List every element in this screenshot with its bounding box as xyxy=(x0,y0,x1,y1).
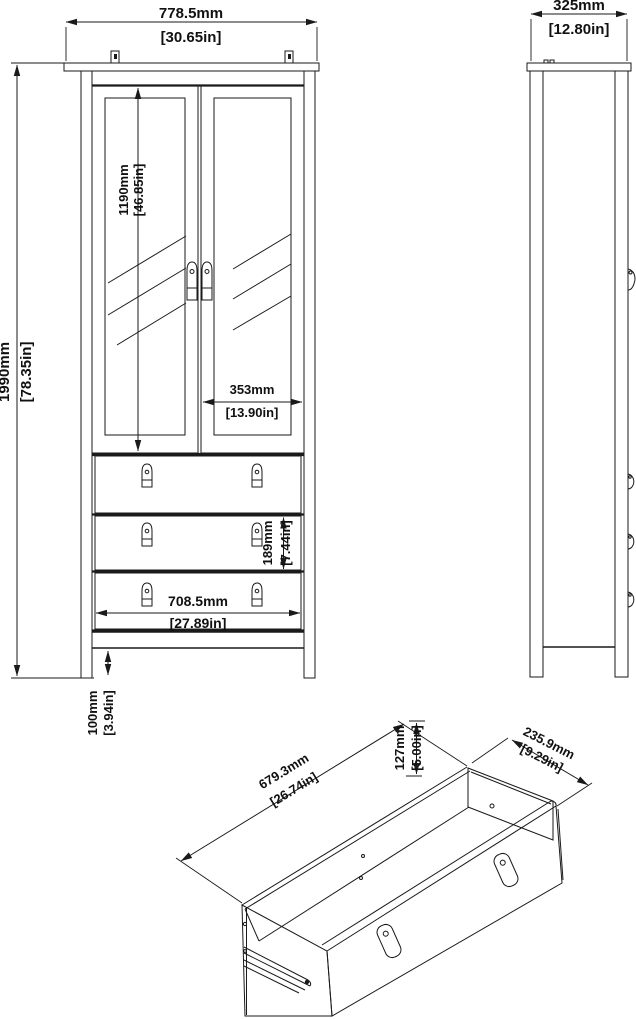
handle-hole xyxy=(145,589,149,593)
handle-outline xyxy=(252,464,262,487)
drawer-box xyxy=(242,767,563,1016)
door-handle-left xyxy=(187,262,197,300)
drawer-3d-view: 679.3mm [26.74in] 127mm [5.00in] 235.9mm… xyxy=(176,721,592,1016)
leg-height-mm-label: 100mm xyxy=(85,691,100,736)
back-wall-top-edges xyxy=(242,767,470,909)
drawer-front-width-in-label: [27.89in] xyxy=(170,615,227,631)
technical-drawing-page: 778.5mm [30.65in] 1990mm [78.35in] xyxy=(0,0,636,1020)
fitting-slot xyxy=(114,54,117,59)
dim-drawer-depth: 235.9mm [9.29in] xyxy=(472,724,592,806)
fitting-slot xyxy=(288,54,291,59)
back-stile xyxy=(530,71,543,677)
front-view: 778.5mm [30.65in] 1990mm [78.35in] xyxy=(0,5,319,736)
rail-screw xyxy=(244,950,247,953)
drawer-height-in-label: [5.00in] xyxy=(409,725,424,771)
front-width-mm-label: 778.5mm xyxy=(159,5,223,22)
left-end-panel xyxy=(242,905,332,1016)
panel-hole xyxy=(490,804,494,808)
handle-strap xyxy=(492,851,520,889)
dim-front-height: 1990mm [78.35in] xyxy=(0,63,94,678)
door-right xyxy=(201,85,304,453)
dim-door-width: 353mm [13.90in] xyxy=(203,382,302,420)
handle-hole xyxy=(629,594,631,596)
dim-drawer-front-height: 189mm [7.44in] xyxy=(260,516,296,571)
handle-hole xyxy=(629,536,631,538)
bottom-rail xyxy=(92,632,304,648)
dim-leg-height: 100mm [3.94in] xyxy=(85,651,116,736)
handle-outline xyxy=(142,583,152,606)
dim-drawer-front-width: 708.5mm [27.89in] xyxy=(96,593,300,631)
drawer3-handle-left xyxy=(142,583,152,606)
handle-outline xyxy=(142,523,152,546)
drawer-front-height-mm-label: 189mm xyxy=(260,521,275,566)
door-handle-side-profile xyxy=(628,269,635,290)
left-end-inner-edge xyxy=(245,909,259,941)
door-left xyxy=(92,85,198,453)
wall-fitting-left xyxy=(111,51,119,63)
door-width-mm-label: 353mm xyxy=(230,382,275,397)
front-height-mm-label: 1990mm xyxy=(0,342,13,402)
glass-reflection-lines-left xyxy=(108,236,186,345)
rail-screw xyxy=(243,922,246,925)
right-stile xyxy=(304,71,315,678)
side-view: 325mm [12.80in] xyxy=(527,0,635,677)
handle-outline xyxy=(187,262,197,300)
handle-hole xyxy=(499,859,506,866)
top-cap-side xyxy=(527,63,631,71)
leg-height-in-label: [3.94in] xyxy=(101,690,116,736)
handle-hole xyxy=(629,476,631,478)
drawer2-handle-left xyxy=(142,523,152,546)
panel-inner-top-edge xyxy=(471,772,551,804)
handle-strap xyxy=(375,922,403,960)
dim-drawer-height: 127mm [5.00in] xyxy=(392,721,425,776)
front-height-in-label: [78.35in] xyxy=(18,342,35,403)
handle-outline xyxy=(202,262,212,300)
handle-hole xyxy=(255,529,259,533)
wall-fitting-right xyxy=(285,51,293,63)
handle-hole xyxy=(629,271,632,274)
left-stile xyxy=(81,71,92,678)
dim-side-depth: 325mm [12.80in] xyxy=(531,0,627,61)
panel-outline xyxy=(242,905,332,1016)
handle-hole xyxy=(382,930,389,937)
side-cabinet xyxy=(527,60,635,677)
handle-hole xyxy=(255,470,259,474)
door-handle-right xyxy=(202,262,212,300)
back-wall-bottom-edge xyxy=(259,807,469,941)
slide-rail xyxy=(244,947,311,993)
panel-outline xyxy=(468,768,553,840)
front-stile xyxy=(615,71,628,677)
drawer-front-handle-right xyxy=(492,851,520,889)
wardrobe-drawing: 778.5mm [30.65in] 1990mm [78.35in] xyxy=(0,0,636,1020)
drawer-front-handle-left xyxy=(375,922,403,960)
glass-reflection-lines-right xyxy=(233,234,291,330)
handle-hole xyxy=(205,270,209,274)
drawer1-handle-left xyxy=(142,464,152,487)
handle-hole xyxy=(145,529,149,533)
front-width-in-label: [30.65in] xyxy=(161,29,222,46)
handle-outline xyxy=(142,464,152,487)
drawer1-handle-side-profile xyxy=(628,474,634,489)
drawer-height-mm-label: 127mm xyxy=(392,726,407,771)
handle-hole xyxy=(190,270,194,274)
rail-end-stud xyxy=(305,980,309,984)
drawer-front-height-in-label: [7.44in] xyxy=(278,520,293,566)
handle-outline xyxy=(252,583,262,606)
front-cabinet xyxy=(64,51,319,678)
top-cap xyxy=(64,63,319,71)
back-wall-hole xyxy=(362,855,365,858)
door-height-in-label: [46.85in] xyxy=(131,164,146,217)
door-height-mm-label: 1190mm xyxy=(116,164,131,215)
drawer-front-width-mm-label: 708.5mm xyxy=(168,593,228,609)
right-end-panel xyxy=(468,768,553,840)
handle-hole xyxy=(255,589,259,593)
drawer-front-1 xyxy=(95,456,301,513)
side-depth-in-label: [12.80in] xyxy=(549,21,610,38)
door-width-in-label: [13.90in] xyxy=(226,405,279,420)
drawer3-handle-side-profile xyxy=(628,592,634,607)
drawer3-handle-right xyxy=(252,583,262,606)
front-rim-inner xyxy=(322,801,556,945)
drawer1-handle-right xyxy=(252,464,262,487)
door-left-glass xyxy=(105,98,185,435)
back-wall-hole xyxy=(360,877,363,880)
handle-hole xyxy=(145,470,149,474)
dim-front-width: 778.5mm [30.65in] xyxy=(66,5,317,61)
drawer2-handle-side-profile xyxy=(628,534,634,549)
side-depth-mm-label: 325mm xyxy=(553,0,605,14)
